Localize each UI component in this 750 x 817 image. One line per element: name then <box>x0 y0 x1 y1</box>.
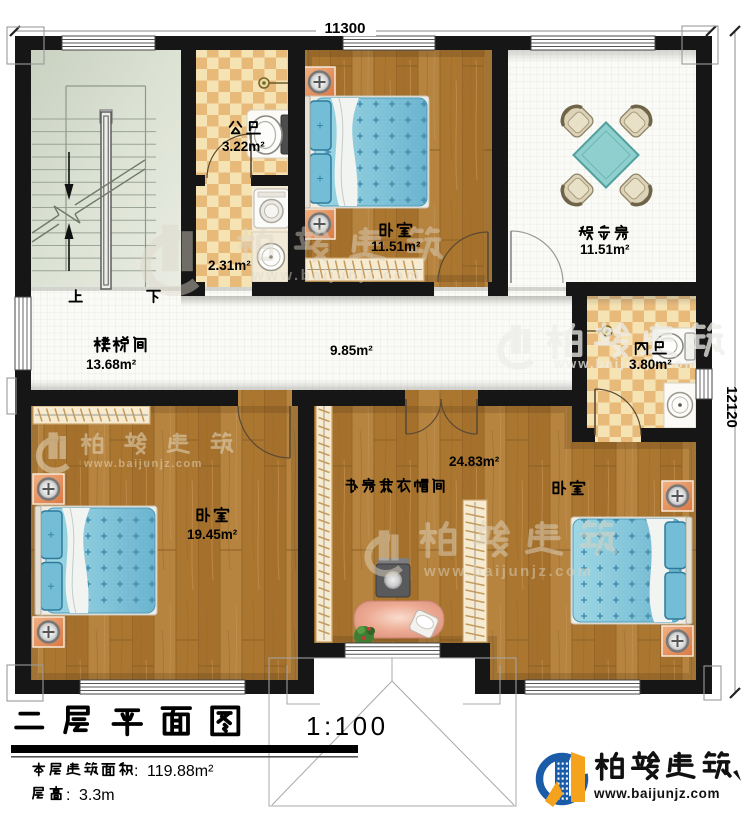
svg-text:9.85m²: 9.85m² <box>330 343 373 358</box>
svg-text:11.51m²: 11.51m² <box>371 239 421 254</box>
svg-text:1:100: 1:100 <box>306 711 389 741</box>
svg-text:www.baijunjz.com: www.baijunjz.com <box>251 267 421 284</box>
svg-text:2.31m²: 2.31m² <box>208 258 251 273</box>
svg-text:19.45m²: 19.45m² <box>187 527 238 542</box>
svg-text:www.baijunjz.com: www.baijunjz.com <box>83 458 203 470</box>
svg-text:3.22m²: 3.22m² <box>222 139 265 154</box>
svg-text:24.83m²: 24.83m² <box>449 454 500 469</box>
svg-text:119.88m²: 119.88m² <box>147 763 214 780</box>
svg-text:11300: 11300 <box>325 20 366 37</box>
svg-text:www.baijunjz.com: www.baijunjz.com <box>423 563 593 580</box>
svg-text:3.3m: 3.3m <box>79 787 115 804</box>
svg-text:13.68m²: 13.68m² <box>86 357 137 372</box>
svg-text:12120: 12120 <box>723 386 740 428</box>
svg-text:3.80m²: 3.80m² <box>629 357 672 372</box>
svg-text:11.51m²: 11.51m² <box>580 242 630 257</box>
svg-text:www.baijunjz.com: www.baijunjz.com <box>593 786 720 801</box>
svg-text:www.baijunjz.com: www.baijunjz.com <box>553 356 698 371</box>
svg-text::: : <box>134 763 138 780</box>
svg-text::: : <box>66 787 70 804</box>
